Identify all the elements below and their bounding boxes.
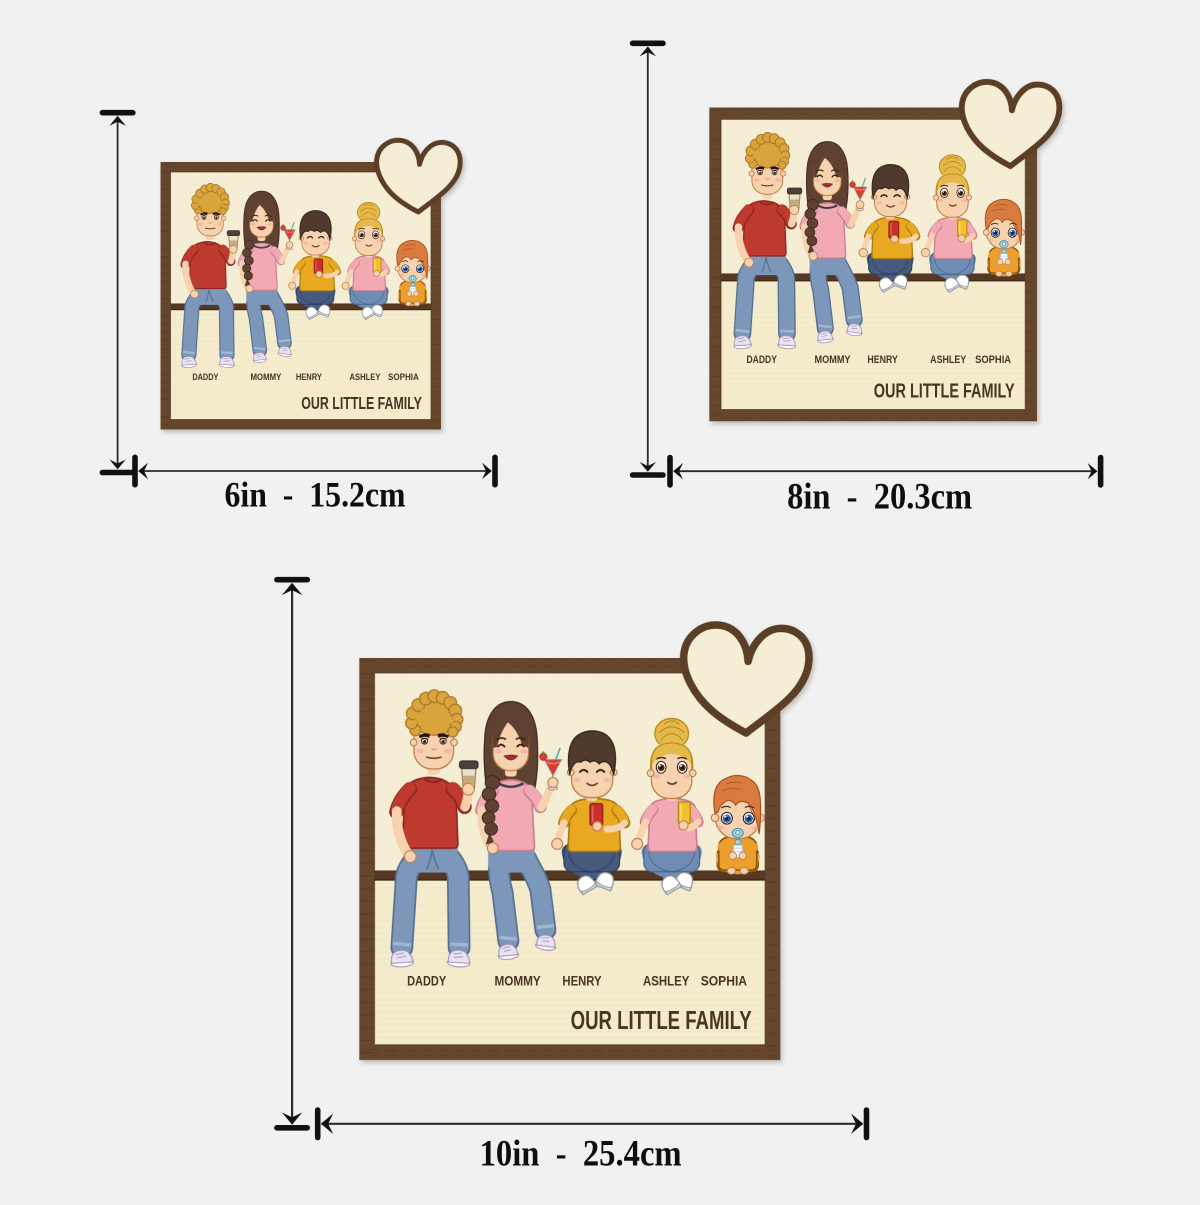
svg-text:6in - 15.2cm: 6in - 15.2cm — [225, 475, 406, 515]
svg-text:10in - 25.4cm: 10in - 25.4cm — [480, 1132, 682, 1173]
svg-text:8in - 20.3cm: 8in - 20.3cm — [787, 476, 972, 517]
